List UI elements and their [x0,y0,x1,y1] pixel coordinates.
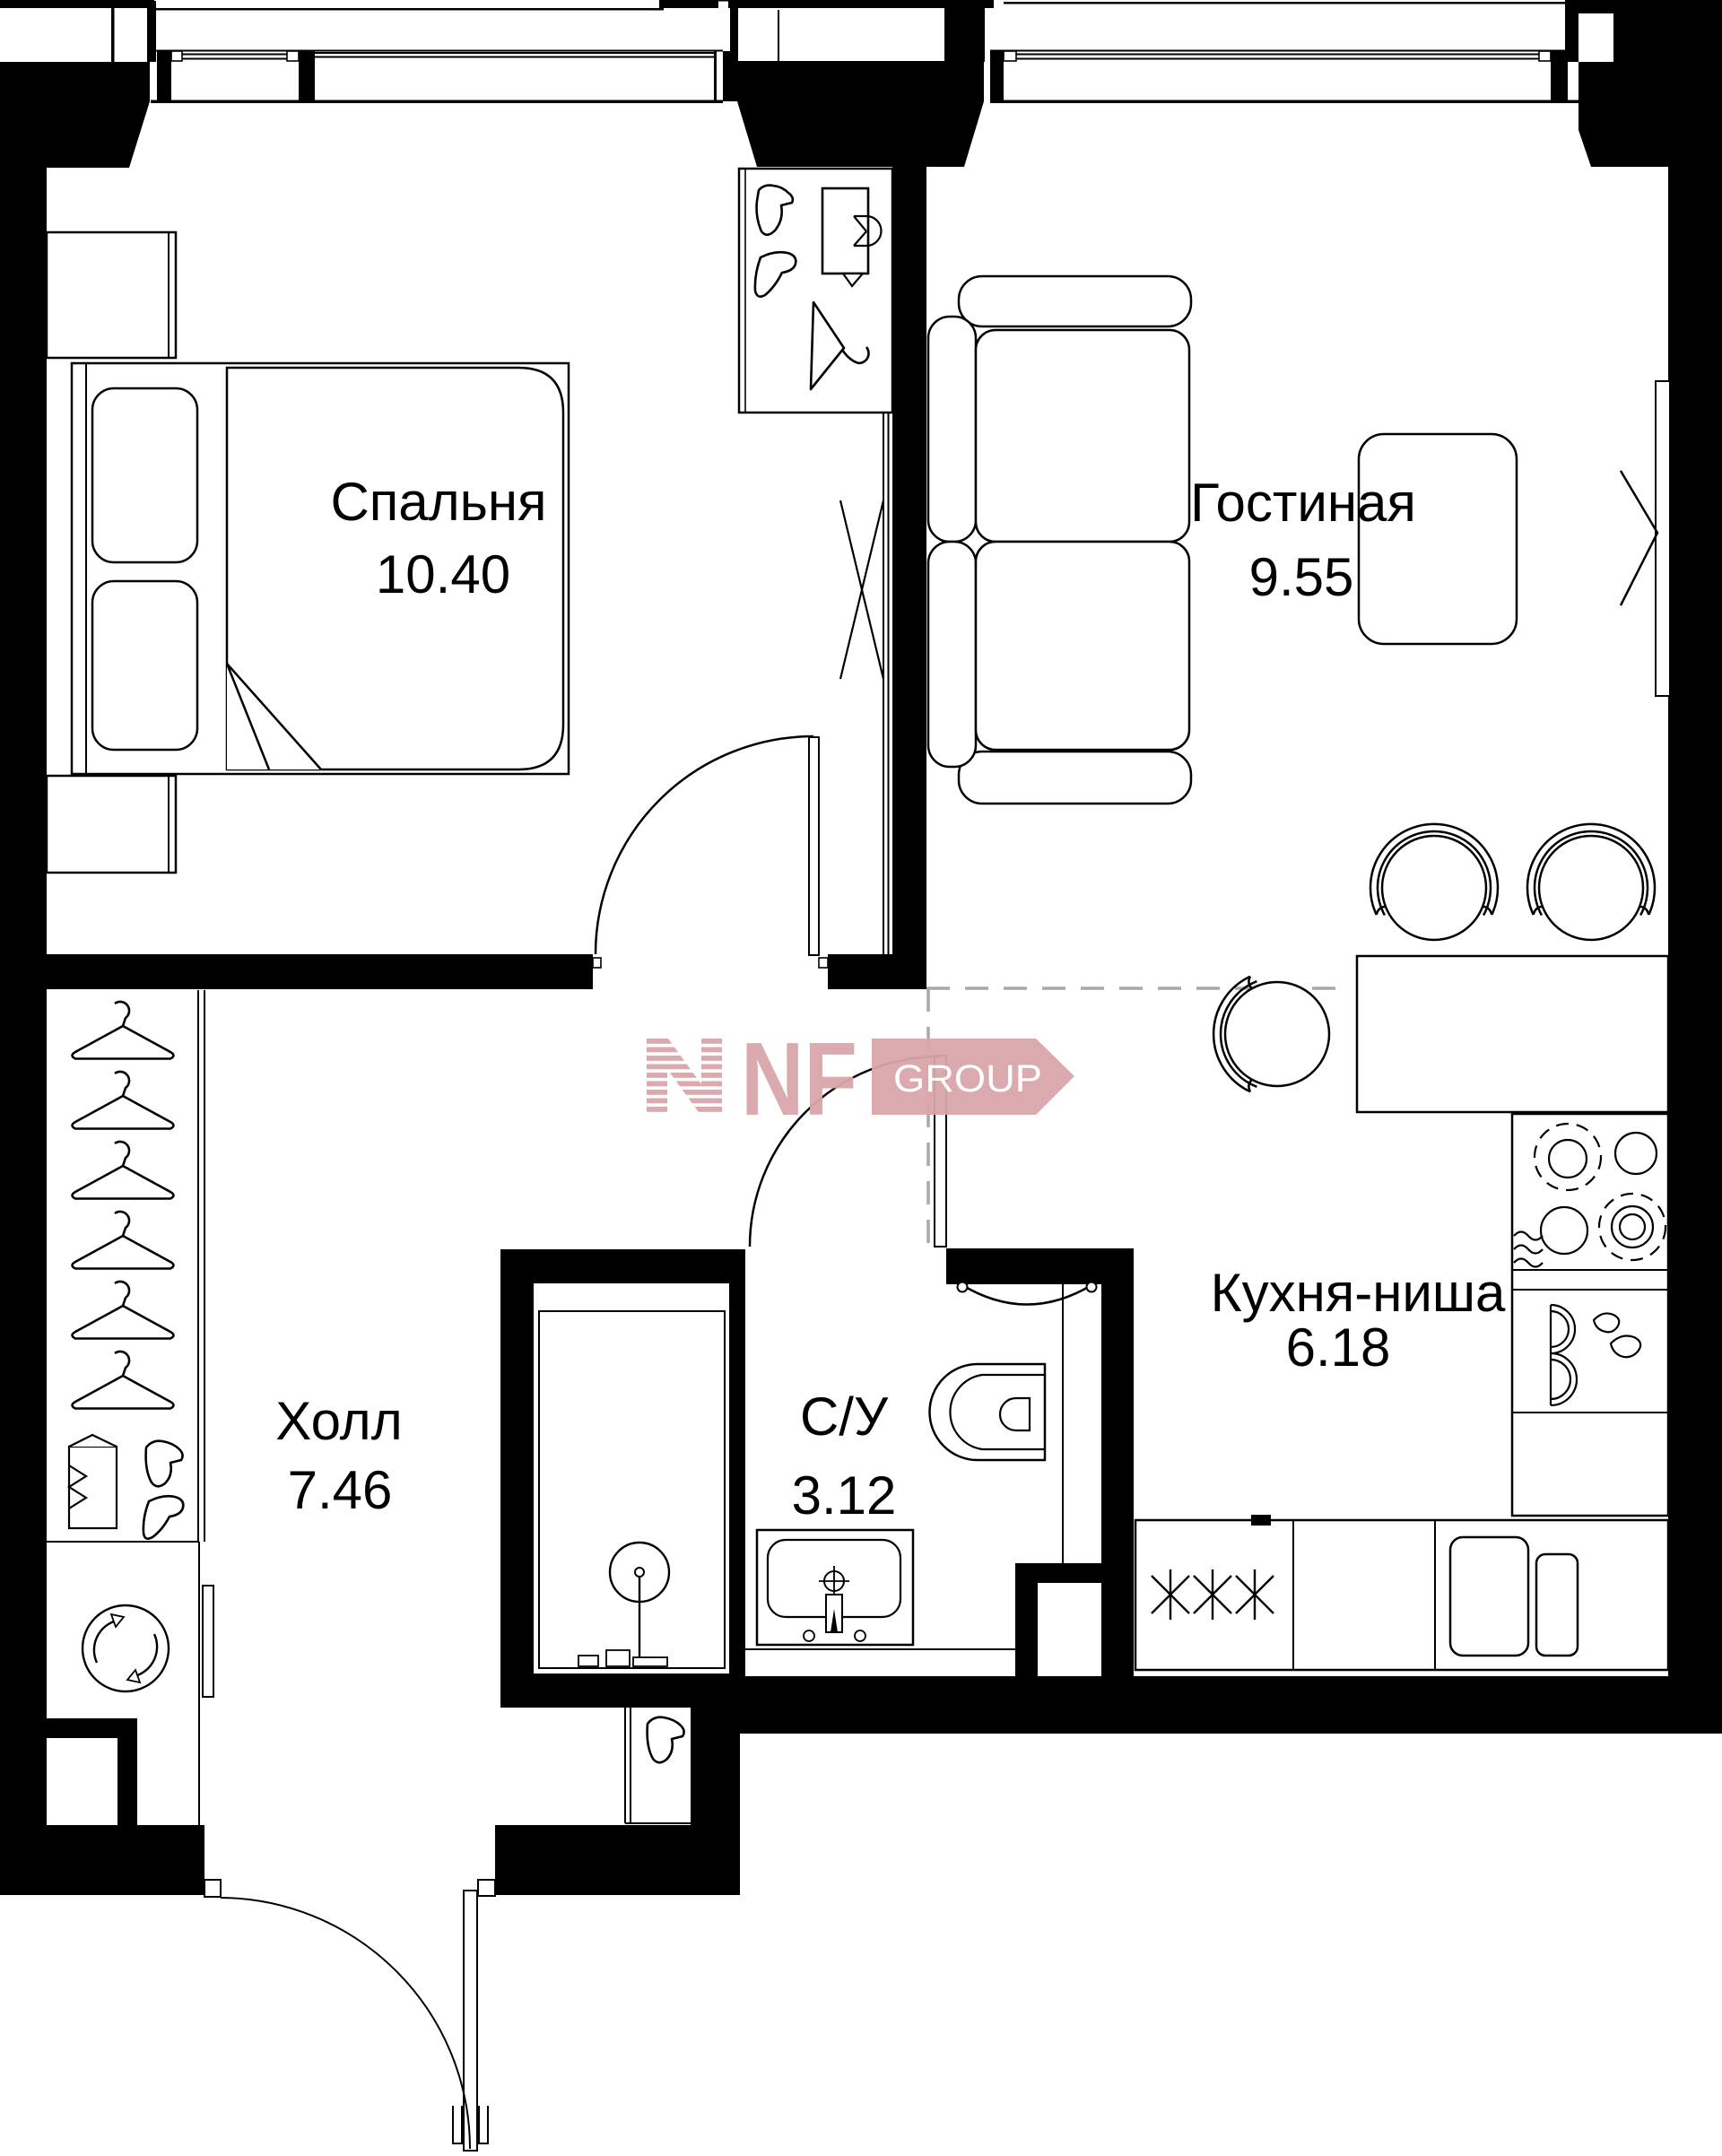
svg-text:Спальня: Спальня [330,472,546,532]
svg-text:NF: NF [741,1021,857,1137]
svg-text:6.18: 6.18 [1286,1317,1391,1378]
svg-text:Гостиная: Гостиная [1190,473,1416,533]
svg-text:Кухня-ниша: Кухня-ниша [1211,1263,1506,1323]
svg-text:Холл: Холл [275,1391,402,1451]
svg-text:7.46: 7.46 [288,1460,393,1520]
svg-text:9.55: 9.55 [1249,547,1354,607]
svg-text:GROUP: GROUP [893,1057,1042,1100]
svg-text:С/У: С/У [800,1387,889,1447]
svg-text:10.40: 10.40 [376,544,510,604]
svg-text:3.12: 3.12 [792,1465,897,1526]
